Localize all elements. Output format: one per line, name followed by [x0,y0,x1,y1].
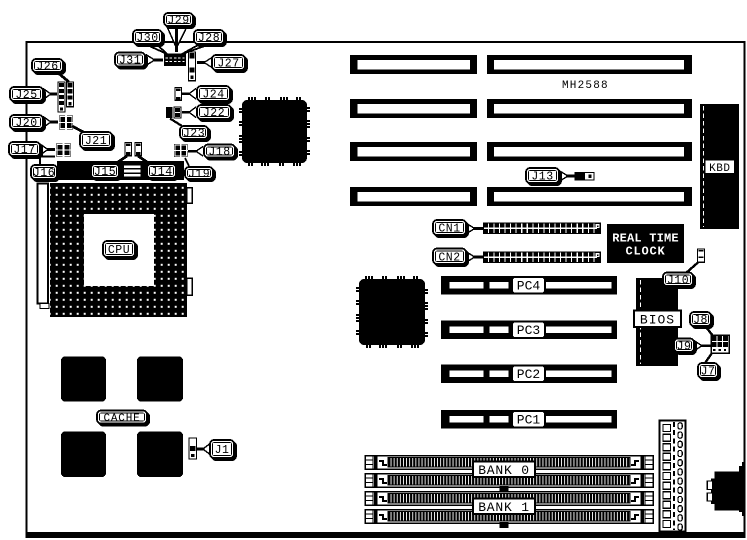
svg-text:KBD: KBD [709,163,730,175]
svg-text:CN1: CN1 [438,223,460,236]
svg-text:J24: J24 [202,89,224,102]
svg-text:J22: J22 [203,107,225,120]
svg-text:BIOS: BIOS [640,313,675,328]
svg-text:J29: J29 [167,15,189,28]
svg-text:J25: J25 [15,89,37,102]
svg-text:J7: J7 [701,366,716,379]
svg-text:REAL TIME: REAL TIME [612,232,679,246]
svg-text:J18: J18 [208,146,230,159]
svg-text:CN2: CN2 [438,251,460,264]
svg-text:J8: J8 [693,314,708,327]
svg-text:J31: J31 [119,55,141,68]
svg-text:J27: J27 [217,58,239,71]
svg-text:BANK 0: BANK 0 [478,463,530,478]
svg-text:J19: J19 [188,168,210,181]
svg-text:BANK 1: BANK 1 [478,500,530,515]
svg-text:J23: J23 [183,128,205,141]
svg-text:MH2588: MH2588 [562,80,609,92]
svg-text:J16: J16 [33,167,55,180]
svg-text:J26: J26 [36,61,58,74]
svg-text:PC2: PC2 [517,367,540,382]
svg-text:J15: J15 [94,166,116,179]
svg-text:CACHE: CACHE [103,413,140,425]
svg-text:PC1: PC1 [517,413,541,428]
svg-text:J20: J20 [15,117,37,130]
svg-text:J28: J28 [198,32,220,45]
svg-text:J9: J9 [677,340,692,353]
svg-text:CPU: CPU [108,244,130,257]
svg-text:J10: J10 [667,274,689,287]
svg-text:PC3: PC3 [517,323,540,338]
svg-text:J1: J1 [215,444,230,457]
svg-text:J14: J14 [150,166,172,179]
svg-text:CLOCK: CLOCK [625,245,665,259]
svg-text:PC4: PC4 [517,279,541,294]
svg-text:J13: J13 [531,171,553,184]
svg-text:J17: J17 [13,144,35,157]
svg-text:J30: J30 [136,32,158,45]
svg-text:J21: J21 [85,135,107,148]
